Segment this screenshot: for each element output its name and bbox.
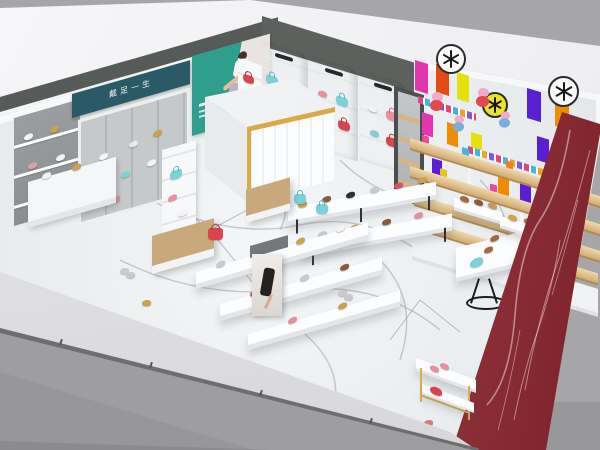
shoe [484, 246, 493, 254]
shoe [418, 176, 427, 184]
pig-dress [453, 122, 464, 131]
shoe [142, 300, 151, 306]
shoe [344, 294, 353, 300]
shoe [470, 256, 483, 268]
shoe [382, 218, 391, 226]
handbag [208, 228, 223, 240]
kids-stripe [457, 72, 469, 103]
pillar-poster [252, 254, 282, 316]
cabinet-light-bar [325, 68, 343, 78]
handbag [170, 168, 182, 180]
shoe [370, 186, 379, 194]
pig-dress [430, 100, 443, 111]
pig-dress [476, 96, 489, 107]
cabinet-light-bar [374, 82, 392, 92]
table-leg [360, 208, 362, 222]
kids-stripe [415, 60, 428, 94]
shoe [129, 140, 138, 149]
pig-dress [499, 118, 510, 127]
snowflake-icon [436, 44, 466, 74]
shoe [153, 129, 162, 138]
cartoon-pig-decal [499, 111, 510, 127]
table-leg [444, 228, 446, 242]
shoe-box [422, 135, 429, 144]
shoe-box [440, 168, 447, 177]
shoe-box [462, 147, 469, 156]
store-render-scene: 戴足一生 [0, 0, 600, 450]
snowflake-icon [548, 76, 579, 107]
pillar-model-leg [264, 294, 273, 309]
shoe [346, 191, 355, 199]
table-leg [296, 219, 298, 233]
shoe [490, 234, 499, 242]
shoe [430, 364, 439, 373]
cabinet-light-bar [275, 53, 293, 63]
shoe [126, 272, 135, 278]
cartoon-pig-decal [476, 88, 489, 107]
shoe [414, 212, 423, 220]
handbag [338, 120, 350, 133]
handbag [336, 95, 348, 108]
kids-stripe [422, 112, 433, 137]
handbag [294, 194, 306, 204]
handbag [316, 204, 328, 214]
shoe [178, 209, 187, 218]
shoe-box [490, 183, 497, 192]
shoe [394, 182, 403, 190]
cartoon-pig-decal [453, 115, 464, 131]
kids-stripe [527, 88, 541, 122]
handbag [243, 74, 254, 85]
poster-pillar [252, 244, 290, 322]
pillar-model-figure [260, 267, 276, 296]
cartoon-pig-decal [430, 92, 443, 111]
table-leg [428, 196, 430, 210]
shoe [168, 194, 177, 203]
shoe [368, 104, 377, 113]
shoe-box [506, 160, 513, 169]
shoe [370, 129, 379, 138]
shoe [121, 170, 130, 179]
shoe [147, 159, 156, 168]
